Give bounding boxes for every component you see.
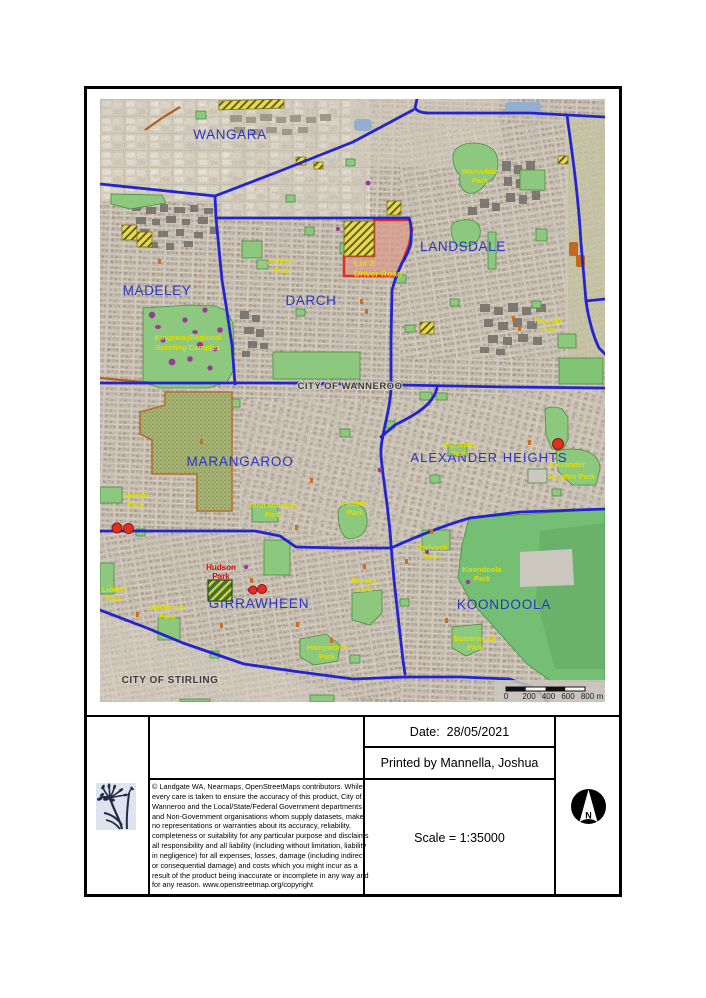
svg-text:Lot 2: Lot 2 [354, 258, 375, 268]
svg-text:KingswayRegional: KingswayRegional [155, 333, 222, 342]
svg-text:MARANGAROO: MARANGAROO [186, 454, 293, 469]
svg-text:Park: Park [127, 500, 144, 509]
svg-text:0: 0 [504, 692, 509, 701]
svg-text:Shelvock: Shelvock [415, 543, 449, 552]
svg-text:Liddell: Liddell [102, 585, 126, 594]
svg-text:Blackmore: Blackmore [148, 603, 186, 612]
svg-text:Park: Park [159, 612, 176, 621]
svg-text:400: 400 [542, 692, 556, 701]
svg-text:Ferrara: Ferrara [351, 576, 378, 585]
svg-text:Paloma: Paloma [342, 499, 370, 508]
svg-text:Ashdale: Ashdale [267, 257, 296, 266]
svg-text:Park: Park [540, 325, 557, 334]
svg-text:ALEXANDER HEIGHTS: ALEXANDER HEIGHTS [410, 450, 567, 465]
svg-text:Hainsworth: Hainsworth [307, 643, 348, 652]
svg-text:Warradale: Warradale [462, 167, 498, 176]
svg-text:Park: Park [472, 176, 489, 185]
svg-text:LANDSDALE: LANDSDALE [420, 239, 506, 254]
svg-text:Park: Park [319, 652, 336, 661]
svg-text:Cabrini: Cabrini [122, 491, 148, 500]
svg-text:m: m [597, 692, 604, 701]
svg-text:Park: Park [347, 508, 364, 517]
svg-text:Fragola: Fragola [534, 316, 562, 325]
svg-text:Park: Park [451, 449, 468, 458]
svg-text:Park: Park [274, 266, 291, 275]
svg-text:KOONDOOLA: KOONDOOLA [457, 597, 551, 612]
svg-text:Park: Park [356, 585, 373, 594]
svg-text:Highview: Highview [443, 440, 476, 449]
svg-text:Butterworth: Butterworth [454, 634, 497, 643]
svg-text:DARCH: DARCH [285, 293, 336, 308]
svg-text:CITY OF WANNEROO: CITY OF WANNEROO [298, 381, 403, 392]
svg-text:Driver Road: Driver Road [354, 269, 402, 279]
svg-text:200: 200 [522, 692, 536, 701]
svg-text:Sporting Complex: Sporting Complex [156, 343, 221, 352]
svg-text:CITY OF STIRLING: CITY OF STIRLING [122, 675, 219, 686]
svg-text:WANGARA: WANGARA [193, 127, 266, 142]
svg-text:MADELEY: MADELEY [123, 283, 192, 298]
svg-text:Hudson: Hudson [206, 563, 236, 572]
svg-text:John Moloney: John Moloney [248, 501, 299, 510]
svg-text:Park: Park [467, 643, 484, 652]
svg-text:Heights Park: Heights Park [549, 472, 596, 481]
svg-text:Alexander: Alexander [549, 460, 585, 469]
svg-text:600: 600 [561, 692, 575, 701]
svg-text:N: N [585, 811, 592, 821]
svg-text:Park: Park [423, 552, 440, 561]
svg-text:Koondoola: Koondoola [462, 565, 502, 574]
svg-text:Park: Park [265, 510, 282, 519]
svg-text:Park: Park [474, 574, 491, 583]
svg-text:800: 800 [581, 692, 595, 701]
svg-text:Park: Park [106, 594, 123, 603]
